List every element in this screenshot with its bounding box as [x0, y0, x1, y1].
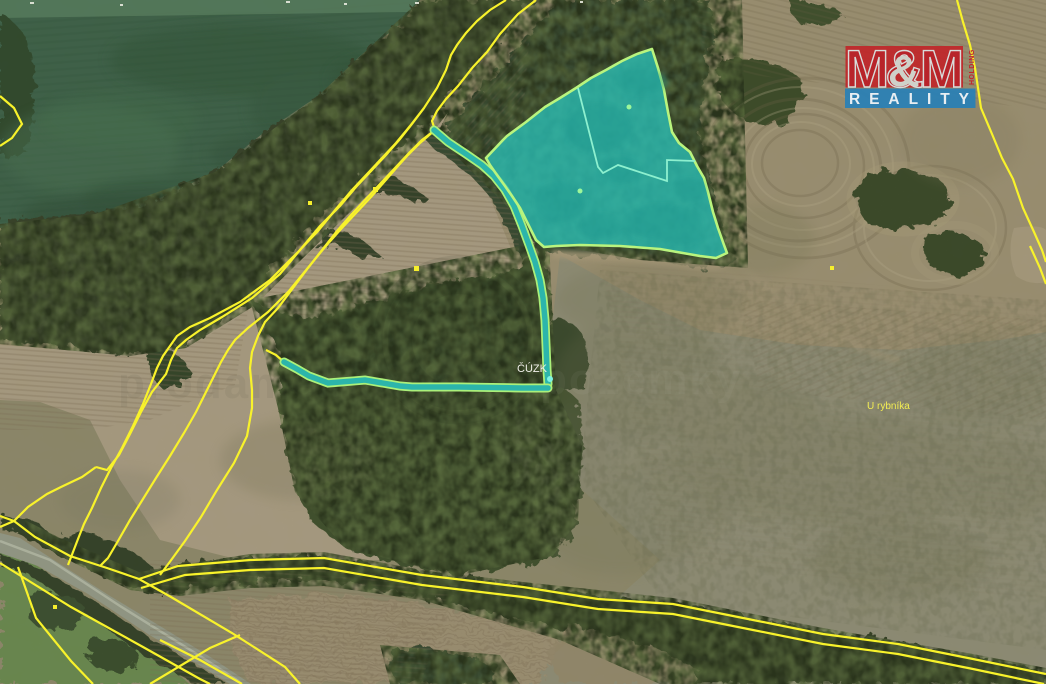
svg-text:U rybníka: U rybníka — [867, 401, 910, 412]
svg-text:&: & — [888, 47, 920, 96]
svg-text:HOLDING: HOLDING — [969, 49, 976, 85]
svg-text:pozemky: pozemky — [540, 355, 742, 404]
svg-text:ČÚZK: ČÚZK — [517, 362, 548, 375]
